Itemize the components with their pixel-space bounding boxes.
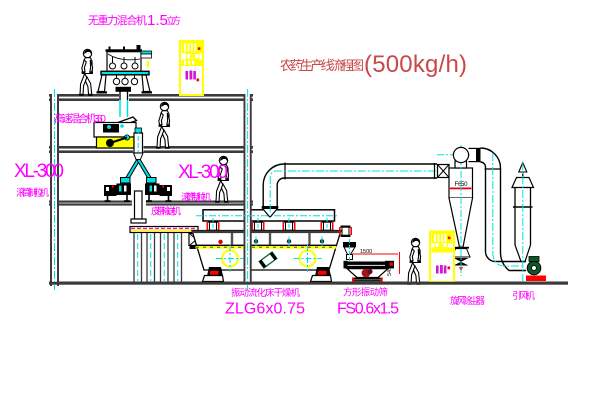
svg-text:引风机: 引风机	[512, 290, 535, 302]
svg-text:1.5: 1.5	[147, 12, 168, 29]
svg-text:1500: 1500	[360, 249, 372, 255]
svg-text:方形振动筛: 方形振动筛	[343, 287, 388, 299]
svg-text:无重力混合机: 无重力混合机	[88, 13, 147, 27]
svg-text:ZLG6x0.75: ZLG6x0.75	[225, 301, 305, 318]
svg-text:滚筒制粒机: 滚筒制粒机	[16, 187, 49, 199]
svg-text:皮带输送机: 皮带输送机	[151, 206, 181, 218]
svg-text:振动流化床干燥机: 振动流化床干燥机	[231, 287, 300, 299]
svg-text:FS0.6x1.5: FS0.6x1.5	[337, 301, 399, 318]
svg-text:(500kg/h): (500kg/h)	[364, 51, 467, 78]
svg-text:XL-300: XL-300	[178, 162, 228, 183]
svg-text:XL-300: XL-300	[14, 161, 64, 182]
svg-text:高速混合机350: 高速混合机350	[54, 112, 106, 125]
svg-text:旋风除尘器: 旋风除尘器	[450, 295, 485, 307]
svg-text:滚筒制粒机: 滚筒制粒机	[181, 192, 211, 204]
svg-text:农药生产线流程图: 农药生产线流程图	[280, 58, 364, 73]
svg-text:立方: 立方	[166, 15, 181, 27]
